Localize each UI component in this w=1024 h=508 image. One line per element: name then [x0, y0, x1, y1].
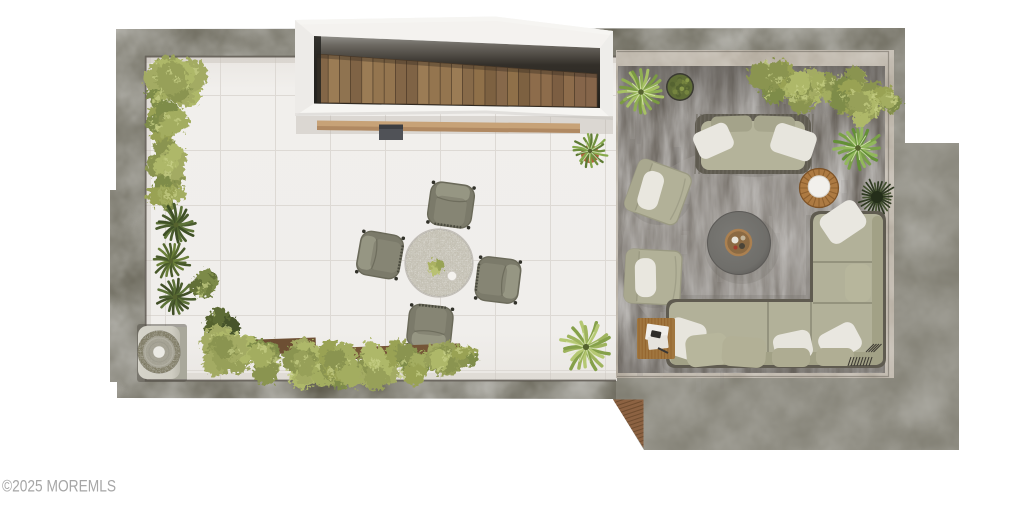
svg-text:©2025 MOREMLS: ©2025 MOREMLS [2, 478, 116, 496]
